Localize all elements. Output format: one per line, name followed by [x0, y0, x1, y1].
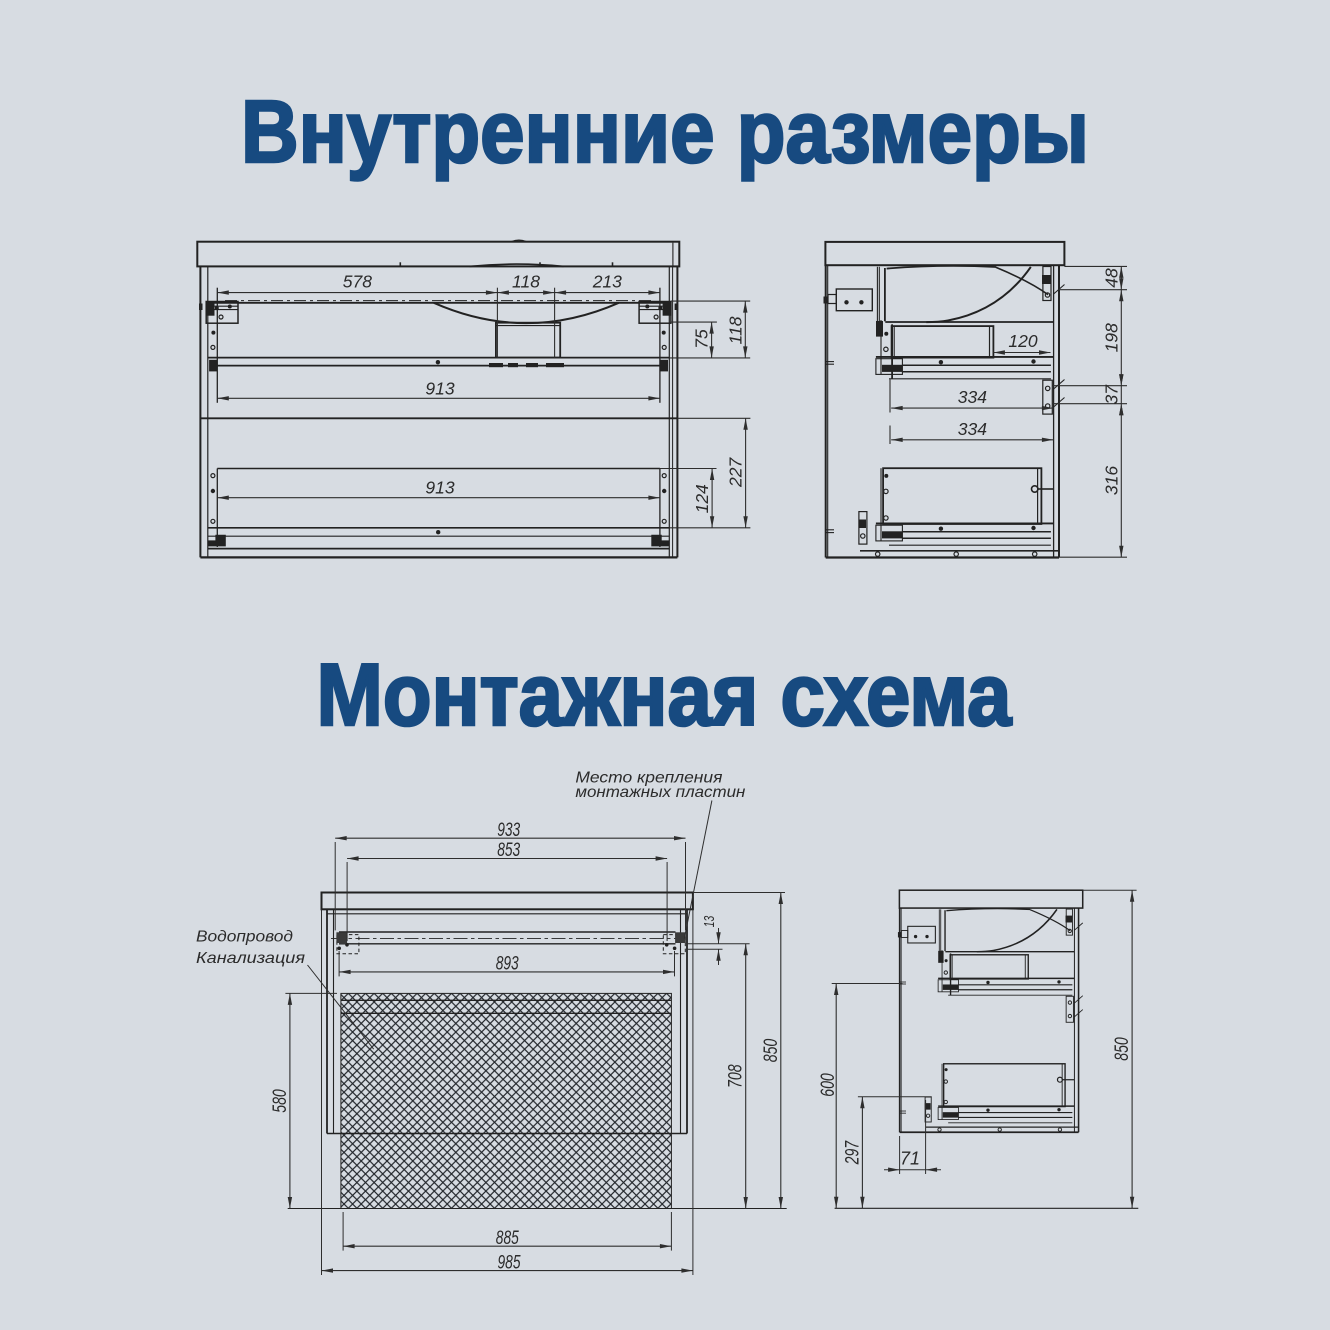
svg-text:124: 124: [692, 484, 712, 513]
svg-text:850: 850: [761, 1038, 782, 1062]
svg-text:933: 933: [497, 820, 520, 841]
svg-text:893: 893: [496, 954, 519, 975]
svg-text:297: 297: [842, 1140, 863, 1165]
svg-text:885: 885: [496, 1228, 519, 1249]
svg-text:334: 334: [958, 387, 987, 407]
svg-text:850: 850: [1112, 1037, 1133, 1061]
svg-text:118: 118: [512, 272, 540, 292]
svg-text:120: 120: [1008, 331, 1037, 351]
svg-text:913: 913: [425, 478, 454, 498]
svg-text:985: 985: [498, 1252, 521, 1273]
svg-text:Монтажная схема: Монтажная схема: [317, 645, 1013, 744]
svg-text:75: 75: [692, 329, 712, 349]
svg-text:Водопровод: Водопровод: [196, 929, 293, 946]
svg-text:853: 853: [497, 840, 520, 861]
svg-text:13: 13: [702, 916, 718, 928]
svg-text:334: 334: [958, 419, 987, 439]
svg-text:Внутренние размеры: Внутренние размеры: [241, 82, 1089, 181]
svg-text:198: 198: [1101, 323, 1121, 352]
svg-text:913: 913: [425, 378, 454, 398]
svg-text:227: 227: [726, 457, 746, 488]
svg-text:213: 213: [592, 272, 622, 292]
svg-text:37: 37: [1101, 384, 1121, 405]
svg-text:Канализация: Канализация: [196, 950, 306, 967]
svg-text:578: 578: [343, 272, 372, 292]
svg-text:118: 118: [725, 316, 745, 344]
svg-text:580: 580: [270, 1089, 291, 1113]
svg-text:48: 48: [1101, 268, 1121, 288]
svg-text:600: 600: [818, 1073, 839, 1097]
svg-text:316: 316: [1101, 466, 1121, 495]
svg-text:71: 71: [900, 1148, 920, 1169]
svg-text:708: 708: [726, 1064, 747, 1088]
svg-text:монтажных пластин: монтажных пластин: [575, 784, 745, 801]
